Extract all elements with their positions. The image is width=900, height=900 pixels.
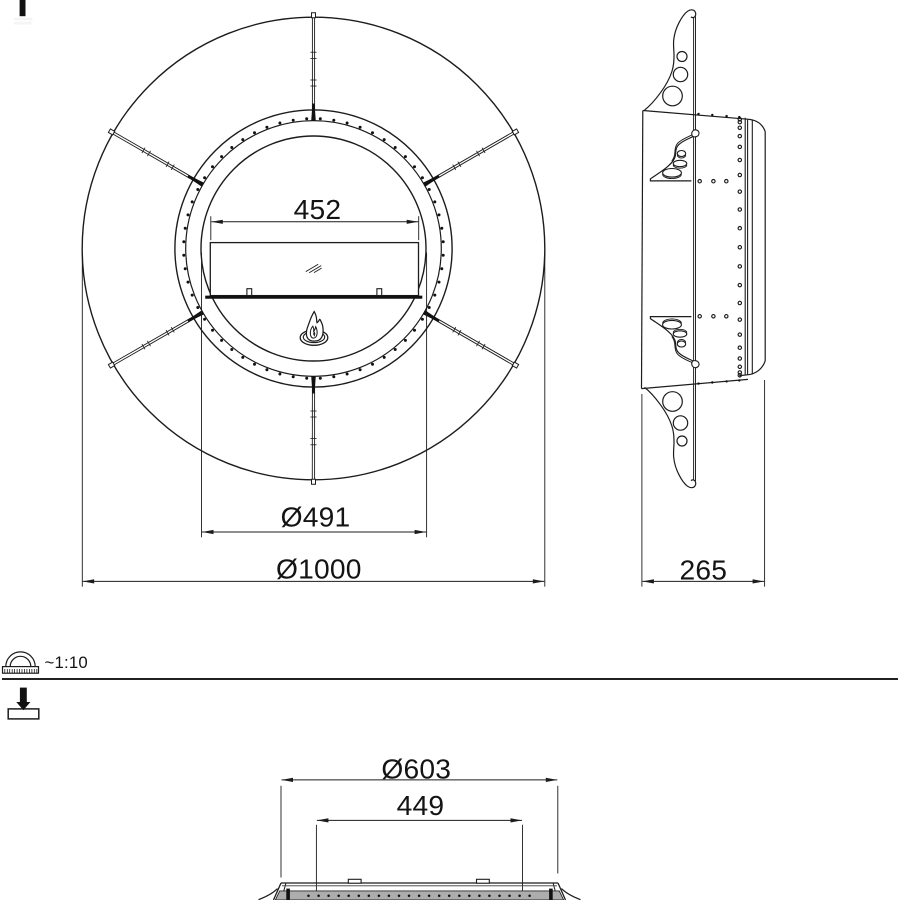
svg-text:452: 452 — [294, 193, 342, 225]
svg-text:Ø1000: Ø1000 — [276, 552, 362, 584]
svg-text:~1:10: ~1:10 — [45, 653, 88, 672]
svg-text:449: 449 — [397, 789, 445, 821]
svg-text:Ø603: Ø603 — [381, 752, 451, 784]
svg-text:265: 265 — [679, 554, 727, 586]
svg-text:Ø491: Ø491 — [281, 501, 351, 533]
